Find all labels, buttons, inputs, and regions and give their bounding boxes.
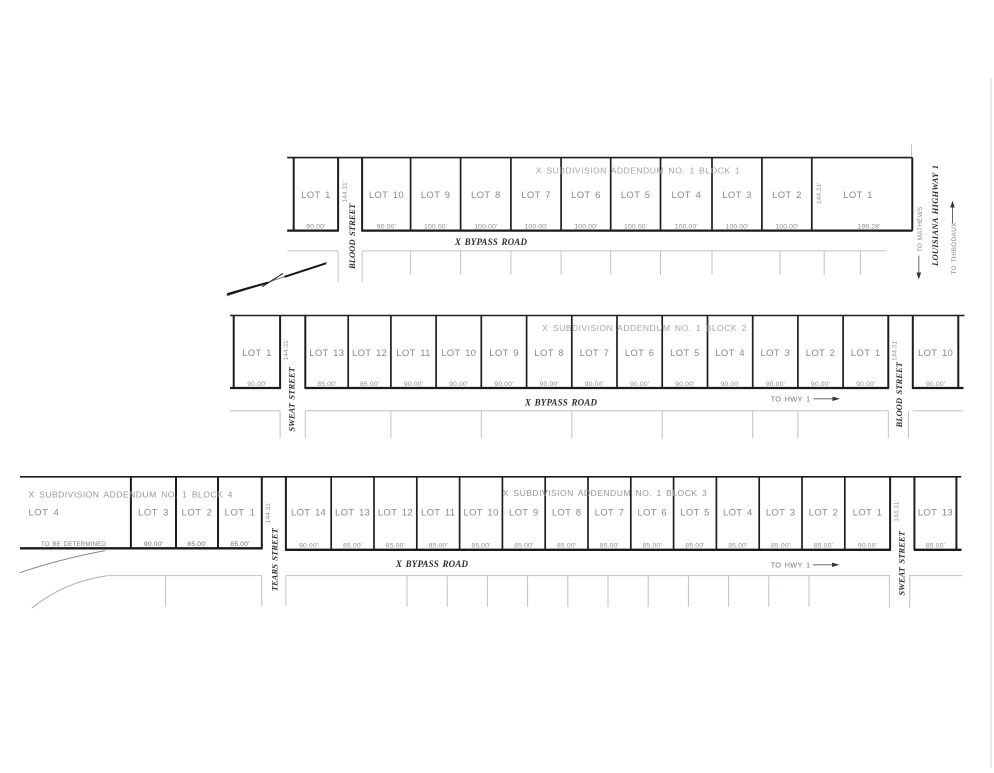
svg-text:90.00': 90.00': [449, 381, 468, 388]
svg-text:LOT 5: LOT 5: [621, 190, 651, 201]
svg-text:85.00': 85.00': [360, 381, 379, 388]
svg-text:90.00': 90.00': [144, 541, 163, 548]
svg-text:85.00': 85.00': [557, 543, 576, 550]
svg-text:LOT 3: LOT 3: [766, 508, 796, 519]
svg-text:85.00': 85.00': [685, 543, 704, 550]
svg-text:85.00': 85.00': [471, 543, 490, 550]
svg-text:BLOOD STREET: BLOOD STREET: [347, 203, 357, 270]
svg-text:90.00': 90.00': [811, 381, 830, 388]
svg-text:TO BE DETERMINED: TO BE DETERMINED: [41, 541, 106, 548]
svg-text:90.00': 90.00': [306, 224, 325, 231]
svg-text:100.00': 100.00': [574, 224, 597, 231]
svg-text:85.00': 85.00': [643, 543, 662, 550]
svg-text:90.00': 90.00': [377, 224, 396, 231]
svg-text:144.31': 144.31': [816, 183, 823, 204]
svg-text:90.00': 90.00': [766, 381, 785, 388]
svg-text:LOT 10: LOT 10: [369, 190, 404, 201]
svg-text:LOT 7: LOT 7: [580, 348, 610, 359]
svg-text:LOT 1: LOT 1: [853, 508, 883, 519]
svg-text:LOT 6: LOT 6: [637, 508, 667, 519]
svg-text:LOT 8: LOT 8: [552, 508, 582, 519]
svg-text:LOT 2: LOT 2: [806, 348, 836, 359]
svg-text:LOT 1: LOT 1: [225, 508, 256, 519]
svg-text:LOT 9: LOT 9: [421, 190, 451, 201]
svg-text:LOT 10: LOT 10: [463, 508, 498, 519]
svg-text:LOT 5: LOT 5: [670, 348, 700, 359]
svg-text:LOT 7: LOT 7: [595, 508, 625, 519]
svg-text:100.00': 100.00': [624, 224, 647, 231]
svg-text:90.00': 90.00': [585, 381, 604, 388]
svg-text:144.31': 144.31': [265, 502, 272, 523]
svg-text:TEARS STREET: TEARS STREET: [270, 528, 280, 592]
svg-text:LOT 6: LOT 6: [625, 348, 655, 359]
svg-text:100.00': 100.00': [675, 224, 698, 231]
svg-text:SWEAT STREET: SWEAT STREET: [897, 530, 907, 595]
svg-text:LOT 1: LOT 1: [242, 348, 272, 359]
svg-text:90.00': 90.00': [926, 381, 945, 388]
svg-text:LOT 1: LOT 1: [843, 190, 873, 201]
svg-text:199.28': 199.28': [857, 224, 880, 231]
svg-text:LOT 2: LOT 2: [772, 190, 802, 201]
svg-text:100.00': 100.00': [524, 224, 547, 231]
svg-text:LOT 12: LOT 12: [378, 508, 413, 519]
svg-text:LOT 1: LOT 1: [301, 190, 331, 201]
svg-text:90.00': 90.00': [630, 381, 649, 388]
svg-text:LOT 4: LOT 4: [29, 508, 60, 519]
svg-text:90.00': 90.00': [247, 381, 266, 388]
svg-text:85.00': 85.00': [317, 381, 336, 388]
svg-text:85.00': 85.00': [600, 543, 619, 550]
svg-text:90.00': 90.00': [675, 381, 694, 388]
svg-text:LOT 5: LOT 5: [680, 508, 710, 519]
svg-text:LOUISIANA HIGHWAY 1: LOUISIANA HIGHWAY 1: [930, 165, 940, 267]
svg-text:90.00': 90.00': [540, 381, 559, 388]
svg-text:85.00': 85.00': [343, 543, 362, 550]
svg-text:144.31': 144.31': [342, 181, 349, 202]
svg-text:LOT 3: LOT 3: [761, 348, 791, 359]
svg-text:85.00': 85.00': [814, 543, 833, 550]
svg-text:LOT 10: LOT 10: [441, 348, 476, 359]
svg-text:X SUBDIVISION ADDENDUM NO.: X SUBDIVISION ADDENDUM NO. 1 BLOCK 1: [536, 166, 740, 176]
svg-text:LOT 6: LOT 6: [571, 190, 601, 201]
svg-text:LOT 2: LOT 2: [809, 508, 839, 519]
svg-text:100.00': 100.00': [474, 224, 497, 231]
svg-text:144.31': 144.31': [283, 339, 290, 360]
svg-text:LOT 3: LOT 3: [138, 508, 169, 519]
svg-text:144.31': 144.31': [892, 340, 899, 361]
svg-text:100.00': 100.00': [725, 224, 748, 231]
svg-text:85.00': 85.00': [728, 543, 747, 550]
svg-text:X SUBDIVISION ADDENDUM NO.: X SUBDIVISION ADDENDUM NO. 1 BLOCK 2: [542, 323, 746, 333]
svg-text:LOT 14: LOT 14: [291, 508, 326, 519]
svg-text:LOT 9: LOT 9: [509, 508, 539, 519]
svg-text:LOT 4: LOT 4: [723, 508, 753, 519]
svg-text:90.00': 90.00': [720, 381, 739, 388]
svg-text:85.00': 85.00': [230, 541, 249, 548]
svg-text:85.00': 85.00': [429, 543, 448, 550]
svg-text:LOT 10: LOT 10: [918, 348, 953, 359]
svg-text:X BYPASS ROAD: X BYPASS ROAD: [524, 397, 598, 407]
svg-text:100.00': 100.00': [424, 224, 447, 231]
svg-text:90.00': 90.00': [494, 381, 513, 388]
svg-text:LOT 8: LOT 8: [534, 348, 564, 359]
svg-text:LOT 7: LOT 7: [521, 190, 551, 201]
svg-text:90.00': 90.00': [856, 381, 875, 388]
svg-text:BLOOD STREET: BLOOD STREET: [894, 361, 904, 428]
svg-text:144.31': 144.31': [894, 500, 901, 521]
svg-text:85.00': 85.00': [386, 543, 405, 550]
svg-text:LOT 9: LOT 9: [489, 348, 519, 359]
svg-text:90.00': 90.00': [404, 381, 423, 388]
svg-text:100.00': 100.00': [775, 224, 798, 231]
svg-text:LOT 12: LOT 12: [352, 348, 387, 359]
svg-text:LOT 4: LOT 4: [672, 190, 702, 201]
svg-text:LOT 3: LOT 3: [722, 190, 752, 201]
svg-text:85.00': 85.00': [187, 541, 206, 548]
svg-text:90.00': 90.00': [858, 543, 877, 550]
svg-text:LOT 13: LOT 13: [918, 508, 953, 519]
svg-text:LOT 13: LOT 13: [335, 508, 370, 519]
svg-text:X BYPASS ROAD: X BYPASS ROAD: [395, 559, 469, 569]
svg-text:LOT 4: LOT 4: [715, 348, 745, 359]
svg-text:90.00': 90.00': [299, 543, 318, 550]
svg-text:LOT 2: LOT 2: [182, 508, 213, 519]
svg-text:X SUBDIVISION ADDENDUM NO.: X SUBDIVISION ADDENDUM NO. 1 BLOCK 3: [503, 488, 707, 498]
svg-text:LOT 13: LOT 13: [309, 348, 344, 359]
svg-text:LOT 11: LOT 11: [421, 508, 455, 519]
svg-text:LOT 1: LOT 1: [851, 348, 881, 359]
svg-text:LOT 11: LOT 11: [396, 348, 430, 359]
svg-text:TO HWY 1: TO HWY 1: [771, 561, 811, 570]
svg-text:X BYPASS ROAD: X BYPASS ROAD: [454, 237, 528, 247]
svg-text:SWEAT STREET: SWEAT STREET: [287, 366, 297, 431]
svg-text:85.00': 85.00': [771, 543, 790, 550]
svg-text:85.00': 85.00': [514, 543, 533, 550]
svg-text:TO HWY 1: TO HWY 1: [771, 395, 811, 404]
svg-text:85.00': 85.00': [926, 543, 945, 550]
svg-text:LOT 8: LOT 8: [471, 190, 501, 201]
svg-text:X SUBDIVISION ADDENDUM NO.: X SUBDIVISION ADDENDUM NO. 1 BLOCK 4: [29, 490, 233, 500]
svg-text:TO THIBODAUX: TO THIBODAUX: [951, 222, 958, 275]
svg-text:TO MATHEWS: TO MATHEWS: [917, 207, 924, 252]
